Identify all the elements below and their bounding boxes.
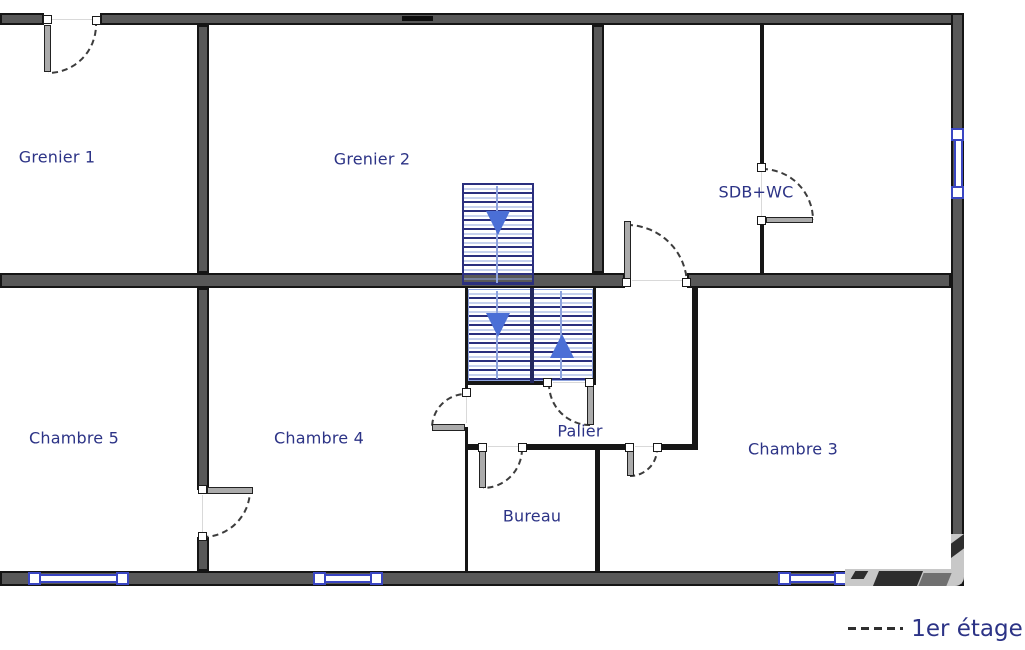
door-leaf-grenier1: [44, 25, 51, 72]
bureau-left-wall: [465, 427, 468, 571]
window-end: [951, 128, 964, 141]
door-leaf-bureau: [479, 450, 486, 488]
grenier2-right-wall: [592, 25, 604, 273]
room-label-grenier1: Grenier 1: [19, 148, 96, 167]
exterior-wall-right: [951, 13, 964, 586]
door-gap-bureau: [488, 446, 518, 447]
door-hinge: [198, 532, 207, 541]
door-leaf-chambre5: [207, 487, 253, 494]
door-hinge: [757, 216, 766, 225]
door-hinge: [622, 278, 631, 287]
stairwell-bottom-wall-a: [465, 381, 548, 385]
stairs-down-arrow-icon: [486, 211, 510, 235]
window-end: [370, 572, 383, 585]
exterior-wall-top-left-segment: [0, 13, 44, 25]
window-end: [778, 572, 791, 585]
door-leaf-chambre4: [432, 424, 465, 431]
room-label-palier: Palier: [557, 422, 602, 441]
door-hinge: [462, 388, 471, 397]
window-end: [28, 572, 41, 585]
door-leaf-sdb: [766, 217, 813, 223]
door-gap-chambre4: [466, 397, 467, 423]
room-label-grenier2: Grenier 2: [334, 150, 411, 169]
room-label-sdb-wc: SDB+WC: [718, 183, 793, 202]
door-hinge: [625, 443, 634, 452]
window-end: [116, 572, 129, 585]
door-hinge: [585, 378, 594, 387]
door-hinge: [543, 378, 552, 387]
door-hinge: [198, 485, 207, 494]
chambre5-divider-upper: [197, 288, 209, 490]
chambre3-left-wall: [692, 288, 698, 450]
watermark: [918, 573, 951, 586]
window-glass: [791, 574, 834, 583]
door-leaf-stairs: [587, 385, 594, 425]
watermark: [873, 571, 923, 586]
door-gap-chambre5: [202, 495, 203, 532]
room-label-bureau: Bureau: [503, 507, 561, 526]
room-label-chambre5: Chambre 5: [29, 429, 119, 448]
window-end: [313, 572, 326, 585]
door-hinge: [92, 16, 101, 25]
window-glass: [326, 574, 370, 583]
palier-south-wall-b: [523, 444, 630, 450]
window-glass: [41, 574, 116, 583]
legend-dash-line: [848, 627, 903, 630]
door-gap-grenier1: [52, 19, 96, 20]
door-leaf-chambre3: [627, 450, 634, 476]
door-gap-chambre3: [635, 446, 653, 447]
room-label-chambre3: Chambre 3: [748, 440, 838, 459]
stairs-down-arrow-icon: [486, 313, 510, 337]
door-hinge: [653, 443, 662, 452]
bureau-right-wall: [595, 447, 600, 571]
door-gap-stairs: [553, 382, 585, 383]
floor-plan: Grenier 1 Grenier 2 SDB+WC Chambre 5 Cha…: [0, 0, 1025, 650]
door-leaf-palier-north: [624, 221, 631, 283]
door-hinge: [518, 443, 527, 452]
palier-south-wall-c: [658, 444, 695, 450]
chambre5-divider-lower: [197, 537, 209, 571]
stairs-up-arrow-icon: [550, 334, 574, 358]
window-glass: [954, 141, 963, 186]
sdb-divider-lower: [760, 221, 764, 273]
stairs-center-divider: [530, 288, 534, 383]
room-label-chambre4: Chambre 4: [274, 429, 364, 448]
door-hinge: [682, 278, 691, 287]
mid-wall-right-segment: [687, 273, 951, 288]
door-hinge: [43, 15, 52, 24]
door-hinge: [478, 443, 487, 452]
stairwell-right-wall: [593, 288, 596, 383]
sdb-divider-upper: [760, 25, 764, 167]
window-end: [951, 186, 964, 199]
grenier-divider-wall: [197, 25, 209, 273]
chimney-mark: [402, 16, 433, 21]
exterior-wall-top: [100, 13, 964, 25]
door-hinge: [757, 163, 766, 172]
legend-floor-label: 1er étage: [911, 616, 1023, 642]
